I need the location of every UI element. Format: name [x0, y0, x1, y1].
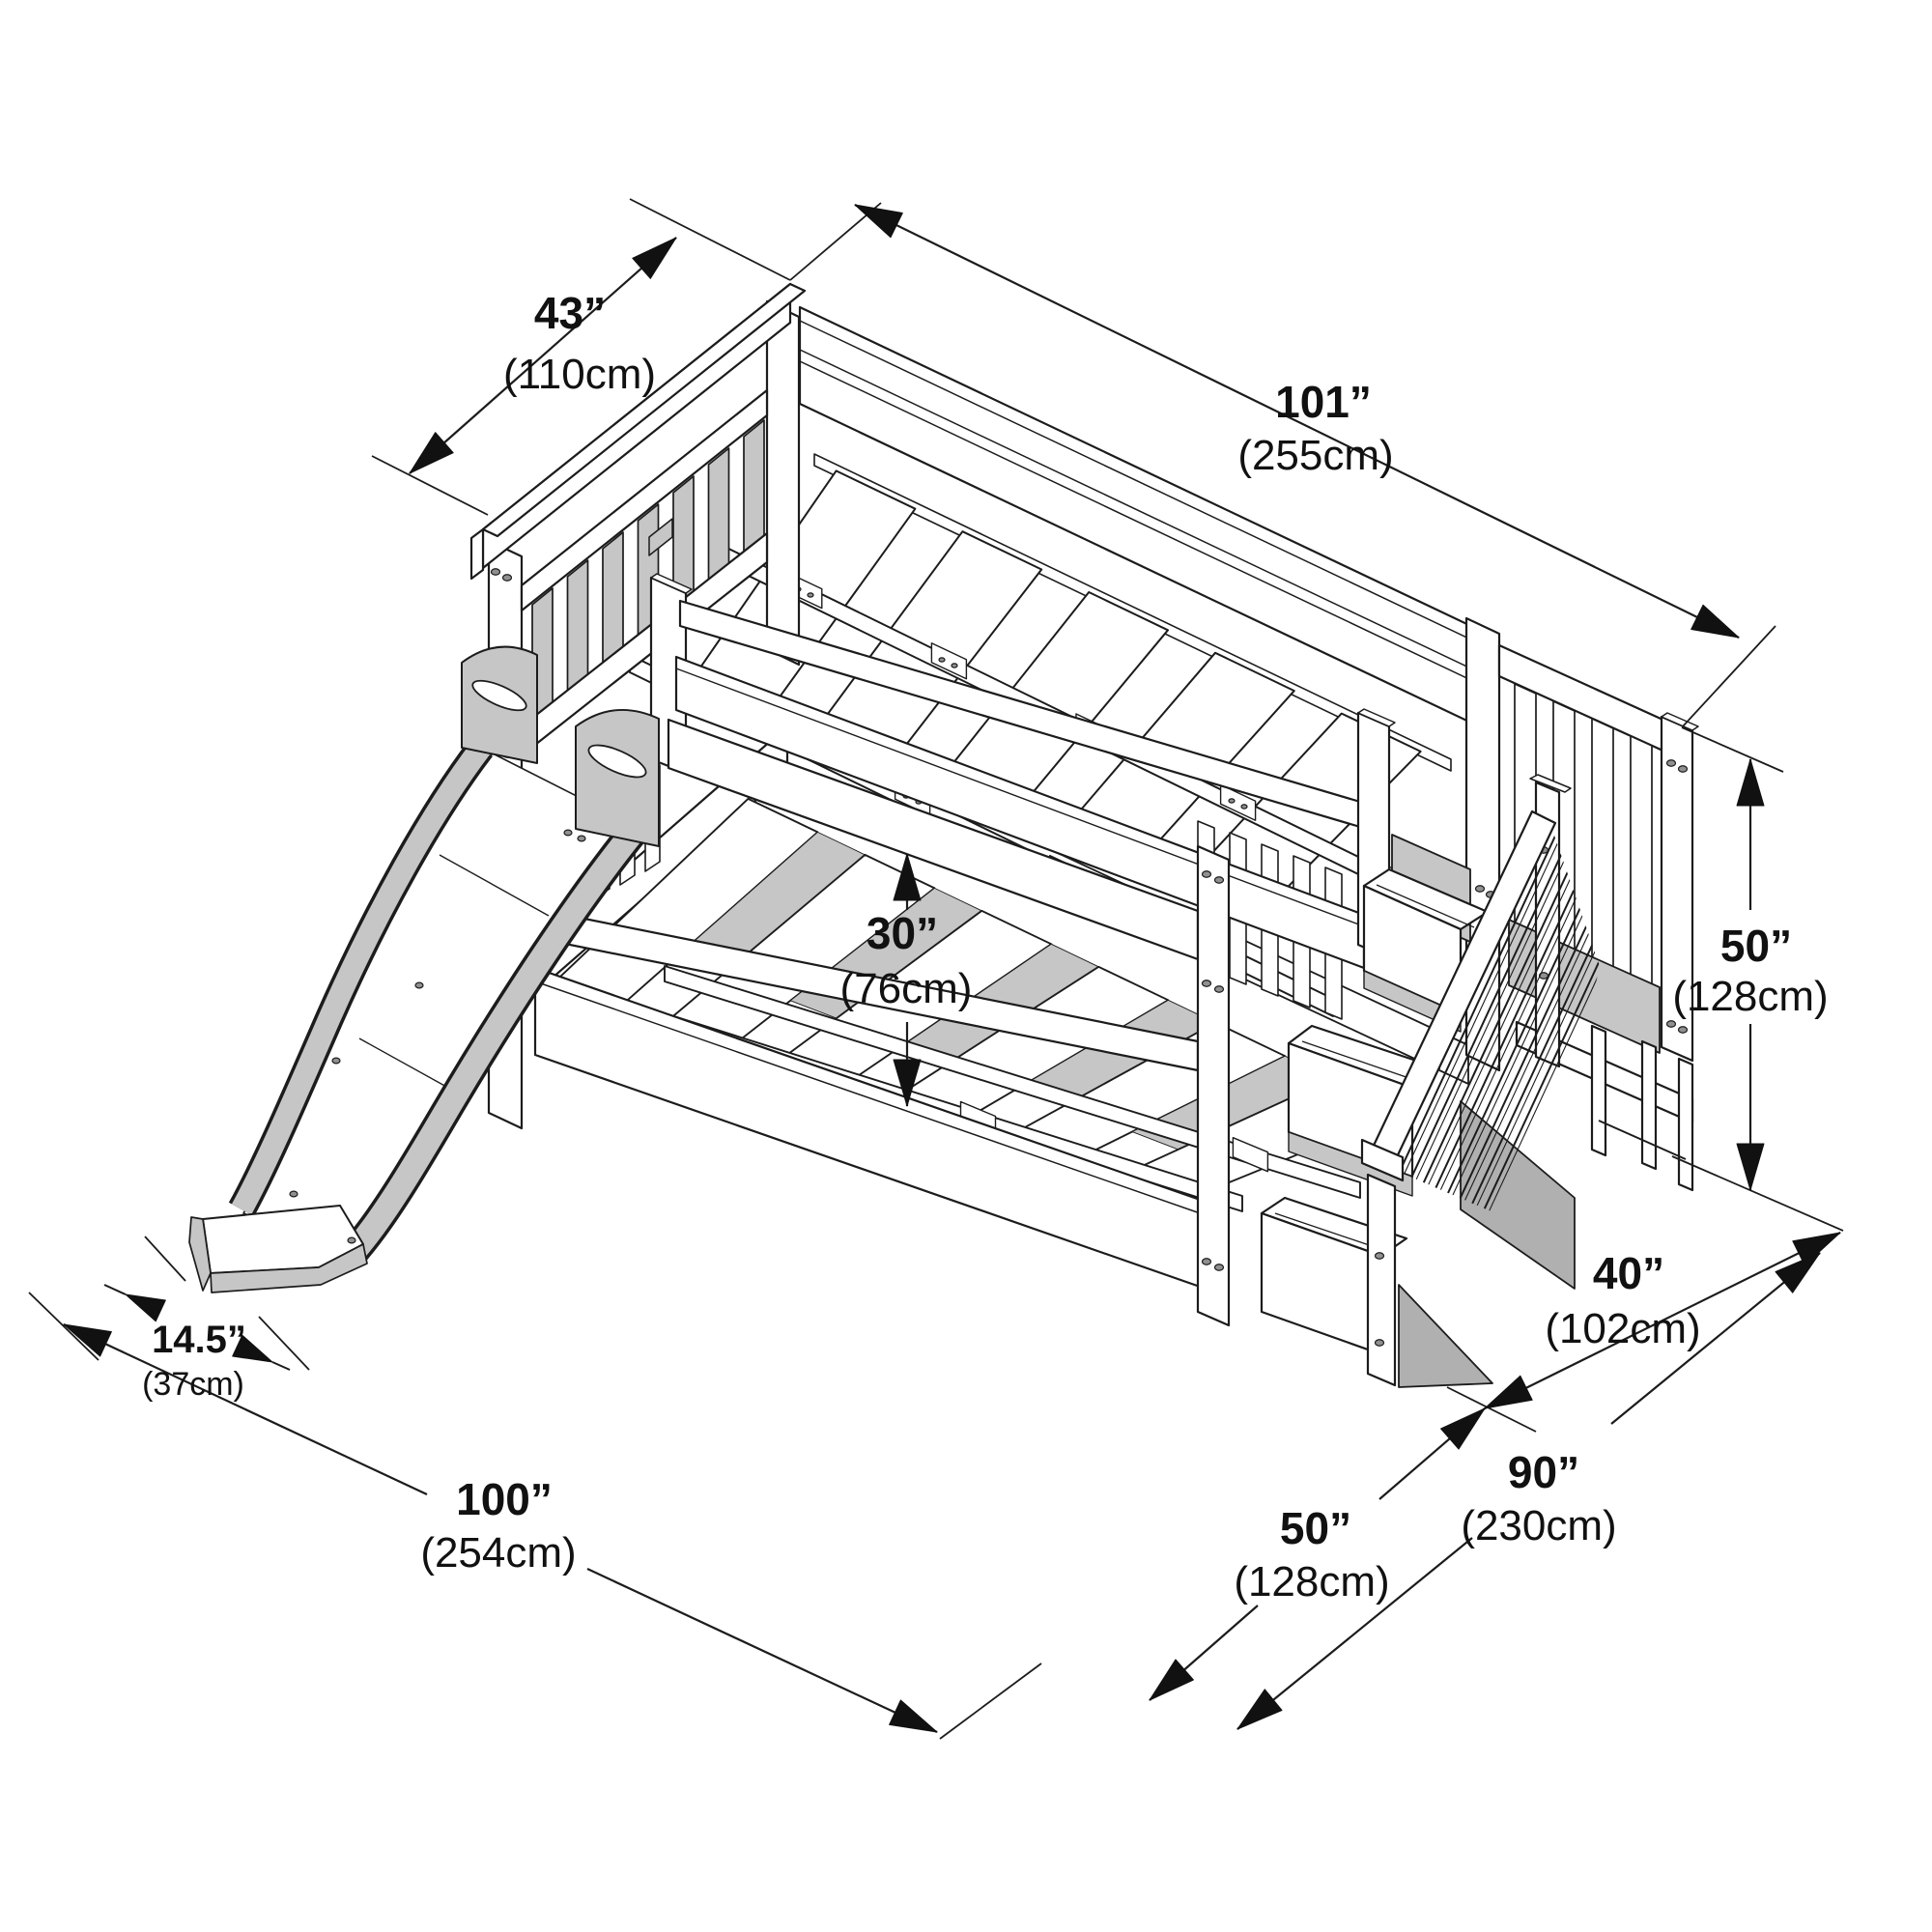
- svg-text:90”: 90”: [1508, 1447, 1579, 1497]
- svg-text:43”: 43”: [534, 288, 606, 338]
- svg-text:(230cm): (230cm): [1461, 1502, 1616, 1549]
- svg-text:30”: 30”: [867, 908, 938, 958]
- svg-text:(37cm): (37cm): [142, 1366, 244, 1403]
- svg-text:(110cm): (110cm): [503, 351, 656, 398]
- svg-text:(128cm): (128cm): [1234, 1558, 1389, 1605]
- svg-text:(254cm): (254cm): [420, 1529, 576, 1577]
- svg-text:14.5”: 14.5”: [152, 1319, 246, 1361]
- svg-text:(102cm): (102cm): [1545, 1305, 1700, 1352]
- svg-text:100”: 100”: [456, 1474, 553, 1524]
- svg-text:(76cm): (76cm): [840, 965, 973, 1012]
- svg-text:40”: 40”: [1593, 1248, 1664, 1298]
- svg-text:50”: 50”: [1280, 1503, 1351, 1553]
- svg-text:(128cm): (128cm): [1672, 973, 1828, 1020]
- svg-text:(255cm): (255cm): [1237, 432, 1393, 479]
- svg-text:50”: 50”: [1720, 921, 1792, 971]
- svg-text:101”: 101”: [1275, 377, 1372, 427]
